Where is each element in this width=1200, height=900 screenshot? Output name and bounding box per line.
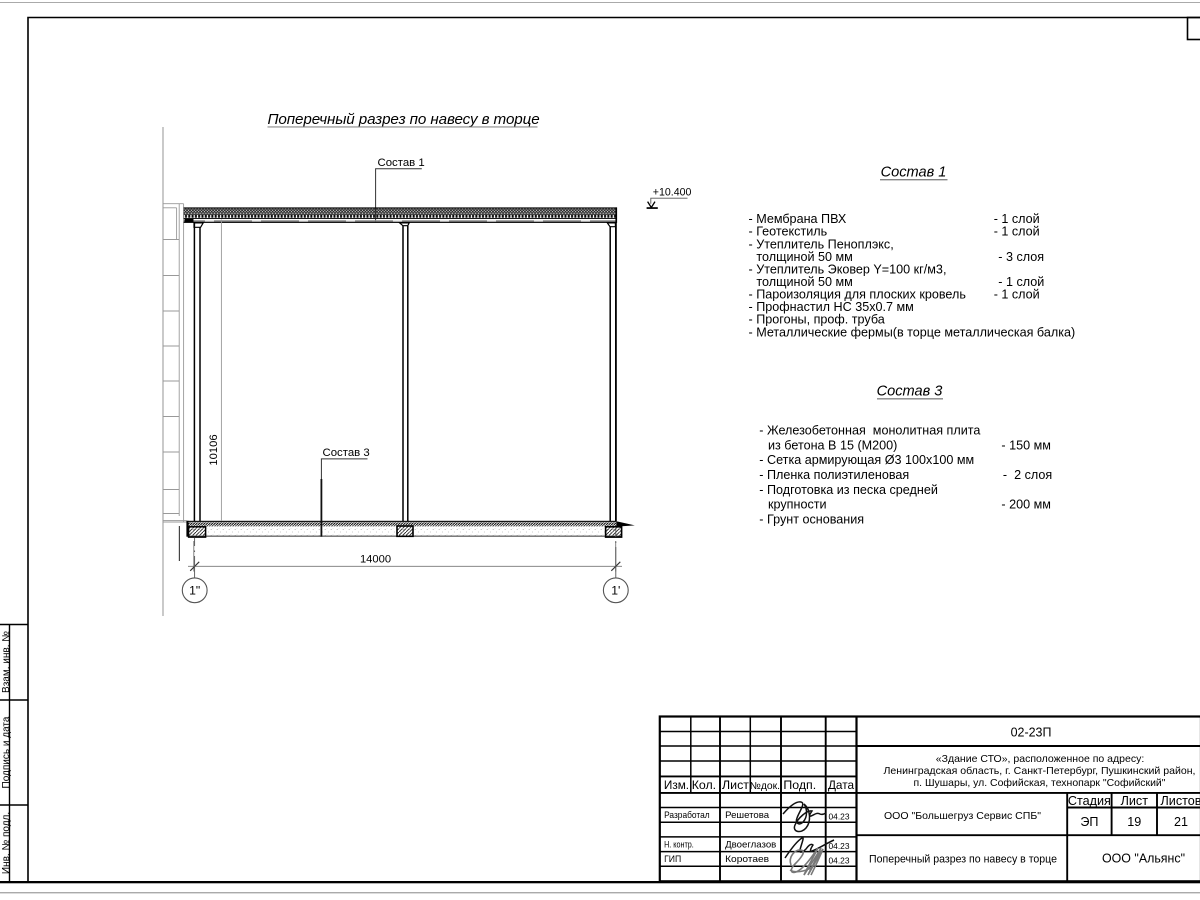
svg-text:04.23: 04.23	[829, 811, 850, 821]
svg-text:- Грунт основания: - Грунт основания	[759, 512, 864, 526]
svg-text:ЭП: ЭП	[1080, 815, 1098, 829]
svg-text:ООО "Большегруз Сервис СПБ": ООО "Большегруз Сервис СПБ"	[884, 810, 1041, 822]
svg-text:Подпись и дата: Подпись и дата	[1, 716, 12, 788]
svg-text:02-23П: 02-23П	[1011, 725, 1052, 739]
svg-text:Изм.: Изм.	[664, 778, 689, 792]
svg-text:- 1 слой: - 1 слой	[994, 225, 1040, 239]
svg-text:Двоеглазов: Двоеглазов	[725, 839, 776, 850]
svg-text:Поперечный разрез по навесу в: Поперечный разрез по навесу в торце	[268, 111, 540, 128]
svg-text:Дата: Дата	[828, 778, 854, 792]
svg-text:из бетона В 15 (М200): из бетона В 15 (М200)	[768, 438, 897, 452]
svg-text:04.23: 04.23	[829, 856, 850, 866]
svg-text:Листов: Листов	[1161, 794, 1200, 808]
svg-text:крупности: крупности	[768, 498, 827, 512]
svg-text:№док.: №док.	[750, 781, 780, 792]
svg-text:04.23: 04.23	[829, 841, 850, 851]
svg-text:Подп.: Подп.	[783, 778, 816, 792]
svg-text:- Подготовка из песка средней: - Подготовка из песка средней	[759, 483, 938, 497]
svg-text:ГИП: ГИП	[664, 854, 681, 865]
svg-text:ООО "Альянс": ООО "Альянс"	[1102, 851, 1185, 865]
svg-text:Решетова: Решетова	[725, 810, 770, 821]
svg-text:- Пленка полиэтиленовая: - Пленка полиэтиленовая	[759, 468, 909, 482]
svg-text:Разработал: Разработал	[664, 810, 710, 821]
svg-text:1': 1'	[611, 584, 620, 598]
svg-text:Состав 1: Состав 1	[881, 164, 947, 180]
svg-text:Состав 1: Состав 1	[378, 157, 425, 169]
svg-text:Кол.: Кол.	[692, 778, 716, 792]
svg-text:- 200 мм: - 200 мм	[1001, 498, 1051, 512]
svg-text:- 3 слоя: - 3 слоя	[998, 250, 1044, 264]
svg-text:Стадия: Стадия	[1068, 794, 1111, 808]
svg-text:Состав 3: Состав 3	[323, 447, 370, 459]
svg-text:- 2 слоя: - 2 слоя	[1003, 468, 1052, 482]
svg-text:Состав 3: Состав 3	[877, 384, 943, 400]
svg-text:14000: 14000	[360, 554, 391, 566]
svg-text:Инв. № подл.: Инв. № подл.	[1, 812, 12, 874]
svg-text:- 150 мм: - 150 мм	[1001, 438, 1051, 452]
svg-text:1": 1"	[189, 584, 200, 598]
svg-text:19: 19	[1127, 815, 1141, 829]
svg-text:Н. контр.: Н. контр.	[664, 839, 694, 850]
svg-text:- Железобетонная монолитная п: - Железобетонная монолитная плита	[759, 424, 980, 438]
svg-text:Ленинградская область, г. Санк: Ленинградская область, г. Санкт-Петербур…	[884, 765, 1196, 777]
svg-text:- 1 слой: - 1 слой	[994, 288, 1040, 302]
svg-text:Взам. инв. №: Взам. инв. №	[1, 631, 12, 693]
svg-text:Лист: Лист	[722, 778, 749, 792]
svg-text:- Металлические фермы(в торце: - Металлические фермы(в торце металличес…	[749, 325, 1076, 339]
svg-text:п. Шушары, ул. Софийская, техн: п. Шушары, ул. Софийская, технопарк "Соф…	[914, 777, 1166, 789]
svg-text:Лист: Лист	[1121, 794, 1149, 808]
svg-text:21: 21	[1174, 815, 1188, 829]
svg-text:- Сетка армирующая Ø3 100х100: - Сетка армирующая Ø3 100х100 мм	[759, 453, 974, 467]
svg-text:Поперечный разрез по навесу в: Поперечный разрез по навесу в торце	[869, 854, 1057, 866]
svg-text:10106: 10106	[208, 434, 220, 465]
svg-text:«Здание СТО», расположенное по: «Здание СТО», расположенное по адресу:	[936, 753, 1145, 765]
svg-text:+10.400: +10.400	[653, 187, 692, 199]
svg-text:Коротаев: Коротаев	[725, 854, 769, 865]
